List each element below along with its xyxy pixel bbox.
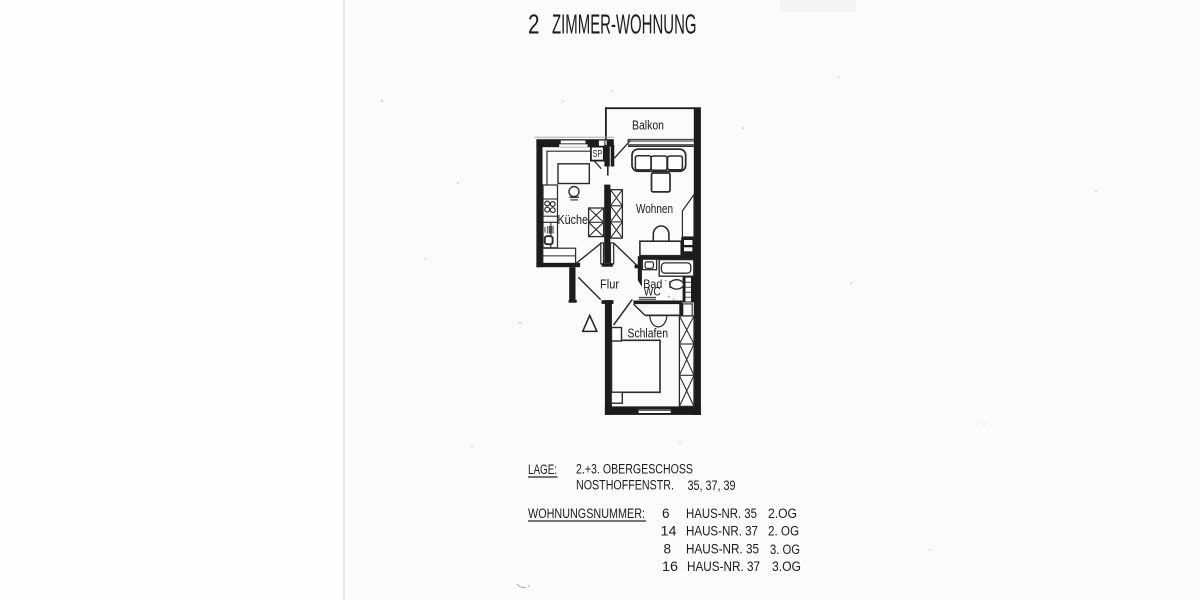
svg-text:Flur: Flur <box>600 278 619 292</box>
svg-text:SP: SP <box>593 149 603 160</box>
svg-text:8: 8 <box>664 542 672 557</box>
svg-text:HAUS-NR. 37: HAUS-NR. 37 <box>686 524 758 539</box>
svg-text:WOHNUNGSNUMMER:: WOHNUNGSNUMMER: <box>528 506 645 521</box>
svg-text:HAUS-NR. 35: HAUS-NR. 35 <box>686 506 757 521</box>
svg-text:14: 14 <box>661 524 678 539</box>
svg-text:3.OG: 3.OG <box>772 559 801 574</box>
svg-text:2: 2 <box>528 9 540 40</box>
svg-text:NOSTHOFFENSTR.: NOSTHOFFENSTR. <box>576 478 674 493</box>
svg-text:HAUS-NR. 37: HAUS-NR. 37 <box>687 559 760 574</box>
svg-text:LAGE:: LAGE: <box>528 462 557 477</box>
svg-text:6: 6 <box>662 506 670 521</box>
svg-text:Schlafen: Schlafen <box>628 327 669 341</box>
svg-text:16: 16 <box>662 559 678 574</box>
svg-text:HAUS-NR. 35: HAUS-NR. 35 <box>686 542 759 557</box>
svg-text:Küche: Küche <box>558 212 589 227</box>
svg-text:WC: WC <box>644 285 661 299</box>
svg-text:2. OG: 2. OG <box>768 524 799 539</box>
svg-text:Wohnen: Wohnen <box>636 201 673 216</box>
svg-text:3. OG: 3. OG <box>770 542 800 557</box>
svg-text:2.OG: 2.OG <box>768 506 797 521</box>
svg-text:ZIMMER-WOHNUNG: ZIMMER-WOHNUNG <box>552 9 697 40</box>
svg-text:Balkon: Balkon <box>632 119 664 133</box>
svg-text:2.+3. OBERGESCHOSS: 2.+3. OBERGESCHOSS <box>576 462 693 477</box>
svg-text:35, 37, 39: 35, 37, 39 <box>688 478 736 493</box>
